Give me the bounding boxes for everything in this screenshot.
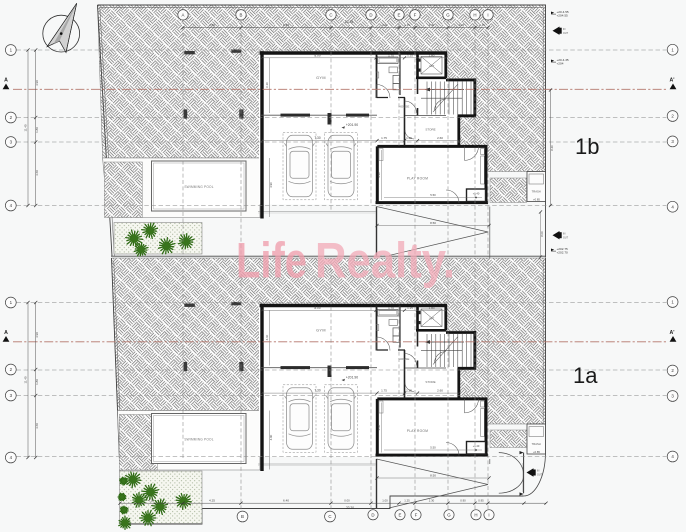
svg-text:6.10: 6.10 <box>265 334 269 340</box>
svg-text:D: D <box>371 512 374 517</box>
svg-text:4.90: 4.90 <box>35 80 39 86</box>
svg-text:4.90: 4.90 <box>269 434 273 440</box>
svg-text:5.50: 5.50 <box>430 193 436 197</box>
svg-text:4.10: 4.10 <box>377 424 381 430</box>
svg-text:F: F <box>414 12 417 17</box>
svg-text:1.25: 1.25 <box>406 389 412 393</box>
svg-text:6.40: 6.40 <box>283 499 289 503</box>
svg-text:+0.85: +0.85 <box>533 450 540 454</box>
svg-text:IN: IN <box>537 470 540 473</box>
svg-text:STORE: STORE <box>425 128 435 132</box>
svg-text:SWIMMING POOL: SWIMMING POOL <box>184 437 213 441</box>
svg-text:HOUSE: HOUSE <box>399 357 410 361</box>
svg-text:+202.70: +202.70 <box>557 251 569 255</box>
svg-text:LIFT: LIFT <box>429 318 434 321</box>
svg-text:2.30: 2.30 <box>429 499 435 503</box>
svg-text:TRASH: TRASH <box>532 190 541 194</box>
svg-text:OUT: OUT <box>537 474 543 477</box>
svg-text:8.50: 8.50 <box>430 221 436 225</box>
svg-text:LIFT: LIFT <box>429 65 434 68</box>
svg-text:Realty.: Realty. <box>315 233 455 289</box>
svg-text:C: C <box>328 514 331 519</box>
svg-text:7.30: 7.30 <box>314 389 320 393</box>
svg-text:A: A <box>4 330 8 336</box>
svg-text:+1.40: +1.40 <box>473 444 480 448</box>
svg-text:4.25: 4.25 <box>148 499 154 503</box>
svg-text:8.00: 8.00 <box>314 306 320 310</box>
svg-text:B: B <box>240 12 243 17</box>
svg-text:4.90: 4.90 <box>269 182 273 188</box>
svg-text:D: D <box>369 12 372 17</box>
svg-text:A': A' <box>670 330 675 336</box>
svg-text:STORE: STORE <box>425 380 435 384</box>
svg-text:1.25: 1.25 <box>404 499 410 503</box>
svg-text:GYM: GYM <box>316 329 326 333</box>
svg-text:1.70: 1.70 <box>388 53 394 57</box>
svg-text:1.75: 1.75 <box>381 389 387 393</box>
svg-text:A': A' <box>670 78 675 84</box>
svg-text:1.25: 1.25 <box>407 53 413 57</box>
svg-text:GYM: GYM <box>316 76 326 80</box>
svg-text:1a: 1a <box>573 363 598 388</box>
svg-text:2.00: 2.00 <box>459 23 465 27</box>
svg-text:TRASH: TRASH <box>532 442 541 446</box>
svg-text:1.00: 1.00 <box>382 499 388 503</box>
svg-text:8.00: 8.00 <box>540 231 544 237</box>
svg-text:1.70: 1.70 <box>388 306 394 310</box>
svg-text:F: F <box>415 512 418 517</box>
svg-text:G: G <box>446 12 450 17</box>
svg-text:1.25: 1.25 <box>407 306 413 310</box>
svg-text:0.90: 0.90 <box>460 499 466 503</box>
svg-text:Life: Life <box>236 233 307 289</box>
svg-text:5.50: 5.50 <box>430 446 436 450</box>
svg-text:0.95: 0.95 <box>478 499 484 503</box>
svg-text:HOUSE: HOUSE <box>399 105 410 109</box>
svg-text:OUT: OUT <box>563 32 569 35</box>
svg-text:11.40: 11.40 <box>23 124 27 131</box>
svg-text:+201.90: +201.90 <box>346 376 358 380</box>
svg-text:A: A <box>182 12 185 17</box>
svg-text:+201.90: +201.90 <box>346 123 358 127</box>
svg-text:4.60: 4.60 <box>35 423 39 429</box>
svg-text:2.45: 2.45 <box>479 23 485 27</box>
svg-text:PLAY ROOM: PLAY ROOM <box>407 177 428 181</box>
svg-text:8.00: 8.00 <box>314 53 320 57</box>
svg-text:2.00: 2.00 <box>382 23 388 27</box>
svg-text:4.25: 4.25 <box>209 499 215 503</box>
svg-text:E: E <box>399 512 402 517</box>
svg-text:23.25: 23.25 <box>345 20 354 24</box>
svg-text:1.25: 1.25 <box>404 23 410 27</box>
svg-text:C: C <box>329 12 332 17</box>
svg-text:G: G <box>447 512 451 517</box>
svg-text:H: H <box>474 512 477 517</box>
svg-text:B: B <box>241 514 244 519</box>
svg-text:1.80: 1.80 <box>429 306 435 310</box>
svg-text:22.20: 22.20 <box>346 506 354 510</box>
svg-text:4.60: 4.60 <box>35 170 39 176</box>
svg-text:8.50: 8.50 <box>430 474 436 478</box>
svg-text:0.00: 0.00 <box>344 499 350 503</box>
svg-text:-0.50: -0.50 <box>348 26 354 30</box>
svg-text:+0.85: +0.85 <box>533 197 540 201</box>
svg-text:I: I <box>488 512 489 517</box>
svg-text:+204: +204 <box>557 62 564 66</box>
svg-text:11.40: 11.40 <box>23 376 27 383</box>
svg-text:2.30: 2.30 <box>429 23 435 27</box>
svg-text:6.10: 6.10 <box>265 82 269 88</box>
svg-text:IN: IN <box>563 28 566 31</box>
svg-text:PLAY ROOM: PLAY ROOM <box>407 429 428 433</box>
svg-text:E: E <box>398 12 401 17</box>
svg-text:4.90: 4.90 <box>35 332 39 338</box>
svg-text:1.80: 1.80 <box>35 379 39 385</box>
svg-text:1.80: 1.80 <box>429 53 435 57</box>
svg-text:1.25: 1.25 <box>406 136 412 140</box>
svg-text:+204.55: +204.55 <box>557 14 569 18</box>
svg-text:2.60: 2.60 <box>437 136 443 140</box>
svg-text:IN: IN <box>563 232 566 235</box>
svg-text:4.10: 4.10 <box>377 172 381 178</box>
svg-text:OUT: OUT <box>563 236 569 239</box>
svg-text:8.40: 8.40 <box>550 145 554 151</box>
svg-text:+1.40: +1.40 <box>473 192 480 196</box>
svg-text:1b: 1b <box>575 134 599 159</box>
svg-text:I: I <box>487 12 488 17</box>
svg-text:1.75: 1.75 <box>381 136 387 140</box>
svg-text:6.43: 6.43 <box>283 23 289 27</box>
svg-text:7.30: 7.30 <box>314 136 320 140</box>
svg-text:A: A <box>4 78 8 84</box>
svg-text:SWIMMING POOL: SWIMMING POOL <box>184 185 213 189</box>
svg-text:H: H <box>473 12 476 17</box>
svg-text:4.50: 4.50 <box>209 23 215 27</box>
svg-text:2.60: 2.60 <box>437 389 443 393</box>
svg-text:1.80: 1.80 <box>35 127 39 133</box>
